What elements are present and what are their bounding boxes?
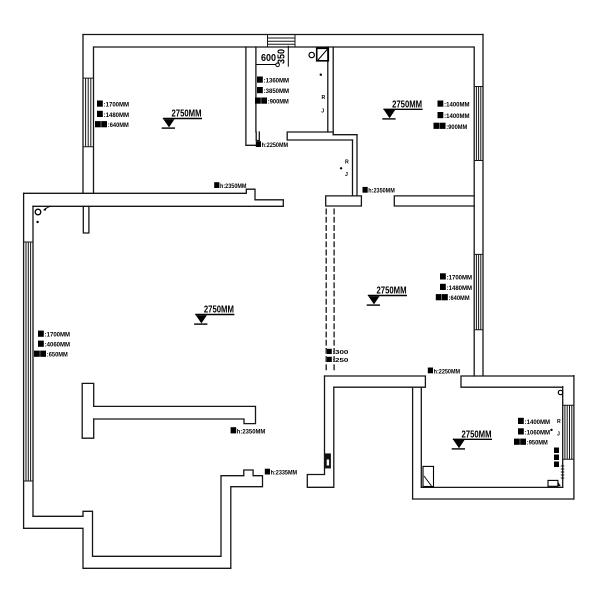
svg-text::1700MM: :1700MM bbox=[447, 274, 473, 281]
svg-text:R: R bbox=[322, 95, 326, 101]
svg-text::900MM: :900MM bbox=[446, 124, 467, 131]
svg-text:h:2335MM: h:2335MM bbox=[271, 470, 298, 477]
svg-text::1360MM: :1360MM bbox=[264, 78, 290, 85]
svg-text::900MM: :900MM bbox=[268, 99, 289, 106]
svg-text::950MM: :950MM bbox=[527, 440, 548, 447]
svg-text:h:2250MM: h:2250MM bbox=[434, 368, 461, 375]
svg-text::1400MM: :1400MM bbox=[525, 419, 551, 426]
svg-text::3850MM: :3850MM bbox=[264, 88, 290, 95]
svg-text:J: J bbox=[557, 432, 560, 438]
svg-text::1400MM: :1400MM bbox=[444, 113, 470, 120]
svg-text::4060MM: :4060MM bbox=[45, 342, 71, 349]
svg-text::1700MM: :1700MM bbox=[104, 102, 130, 109]
svg-text::640MM: :640MM bbox=[108, 122, 129, 129]
svg-text::640MM: :640MM bbox=[449, 295, 470, 302]
svg-text:R: R bbox=[345, 160, 349, 166]
svg-text:R: R bbox=[557, 419, 561, 425]
svg-text:h:2350MM: h:2350MM bbox=[368, 188, 395, 195]
svg-text:350: 350 bbox=[277, 49, 288, 64]
svg-text:J: J bbox=[321, 109, 324, 115]
svg-text:h:2350MM: h:2350MM bbox=[237, 429, 266, 436]
svg-text::1700MM: :1700MM bbox=[45, 332, 71, 339]
svg-text:600: 600 bbox=[261, 52, 276, 64]
svg-text::300: :300 bbox=[332, 350, 348, 356]
svg-text::1480MM: :1480MM bbox=[104, 112, 130, 119]
svg-text:h:2250MM: h:2250MM bbox=[262, 142, 289, 149]
svg-text::650MM: :650MM bbox=[47, 352, 68, 359]
svg-text:h:2350MM: h:2350MM bbox=[220, 183, 247, 190]
svg-text:J: J bbox=[345, 172, 348, 178]
svg-text::1060MM: :1060MM bbox=[525, 429, 551, 436]
svg-text::1480MM: :1480MM bbox=[447, 285, 473, 292]
svg-text::1400MM: :1400MM bbox=[444, 102, 470, 109]
svg-text::250: :250 bbox=[332, 358, 348, 364]
